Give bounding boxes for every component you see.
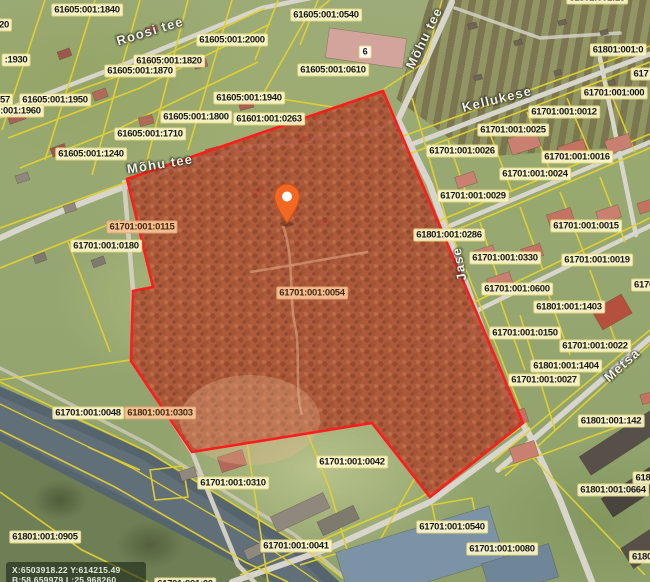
coordinate-bl: B:58.659979 L:25.968260 [12, 575, 140, 582]
coordinate-xy: X:6503918.22 Y:614215.49 [12, 565, 140, 575]
map-graphics [0, 0, 650, 582]
coordinate-readout: X:6503918.22 Y:614215.49 B:58.659979 L:2… [6, 562, 146, 582]
selected-parcel-polygon[interactable] [127, 91, 523, 497]
map-viewport[interactable]: 61605:001:184061605:001:200061605:001:18… [0, 0, 650, 582]
